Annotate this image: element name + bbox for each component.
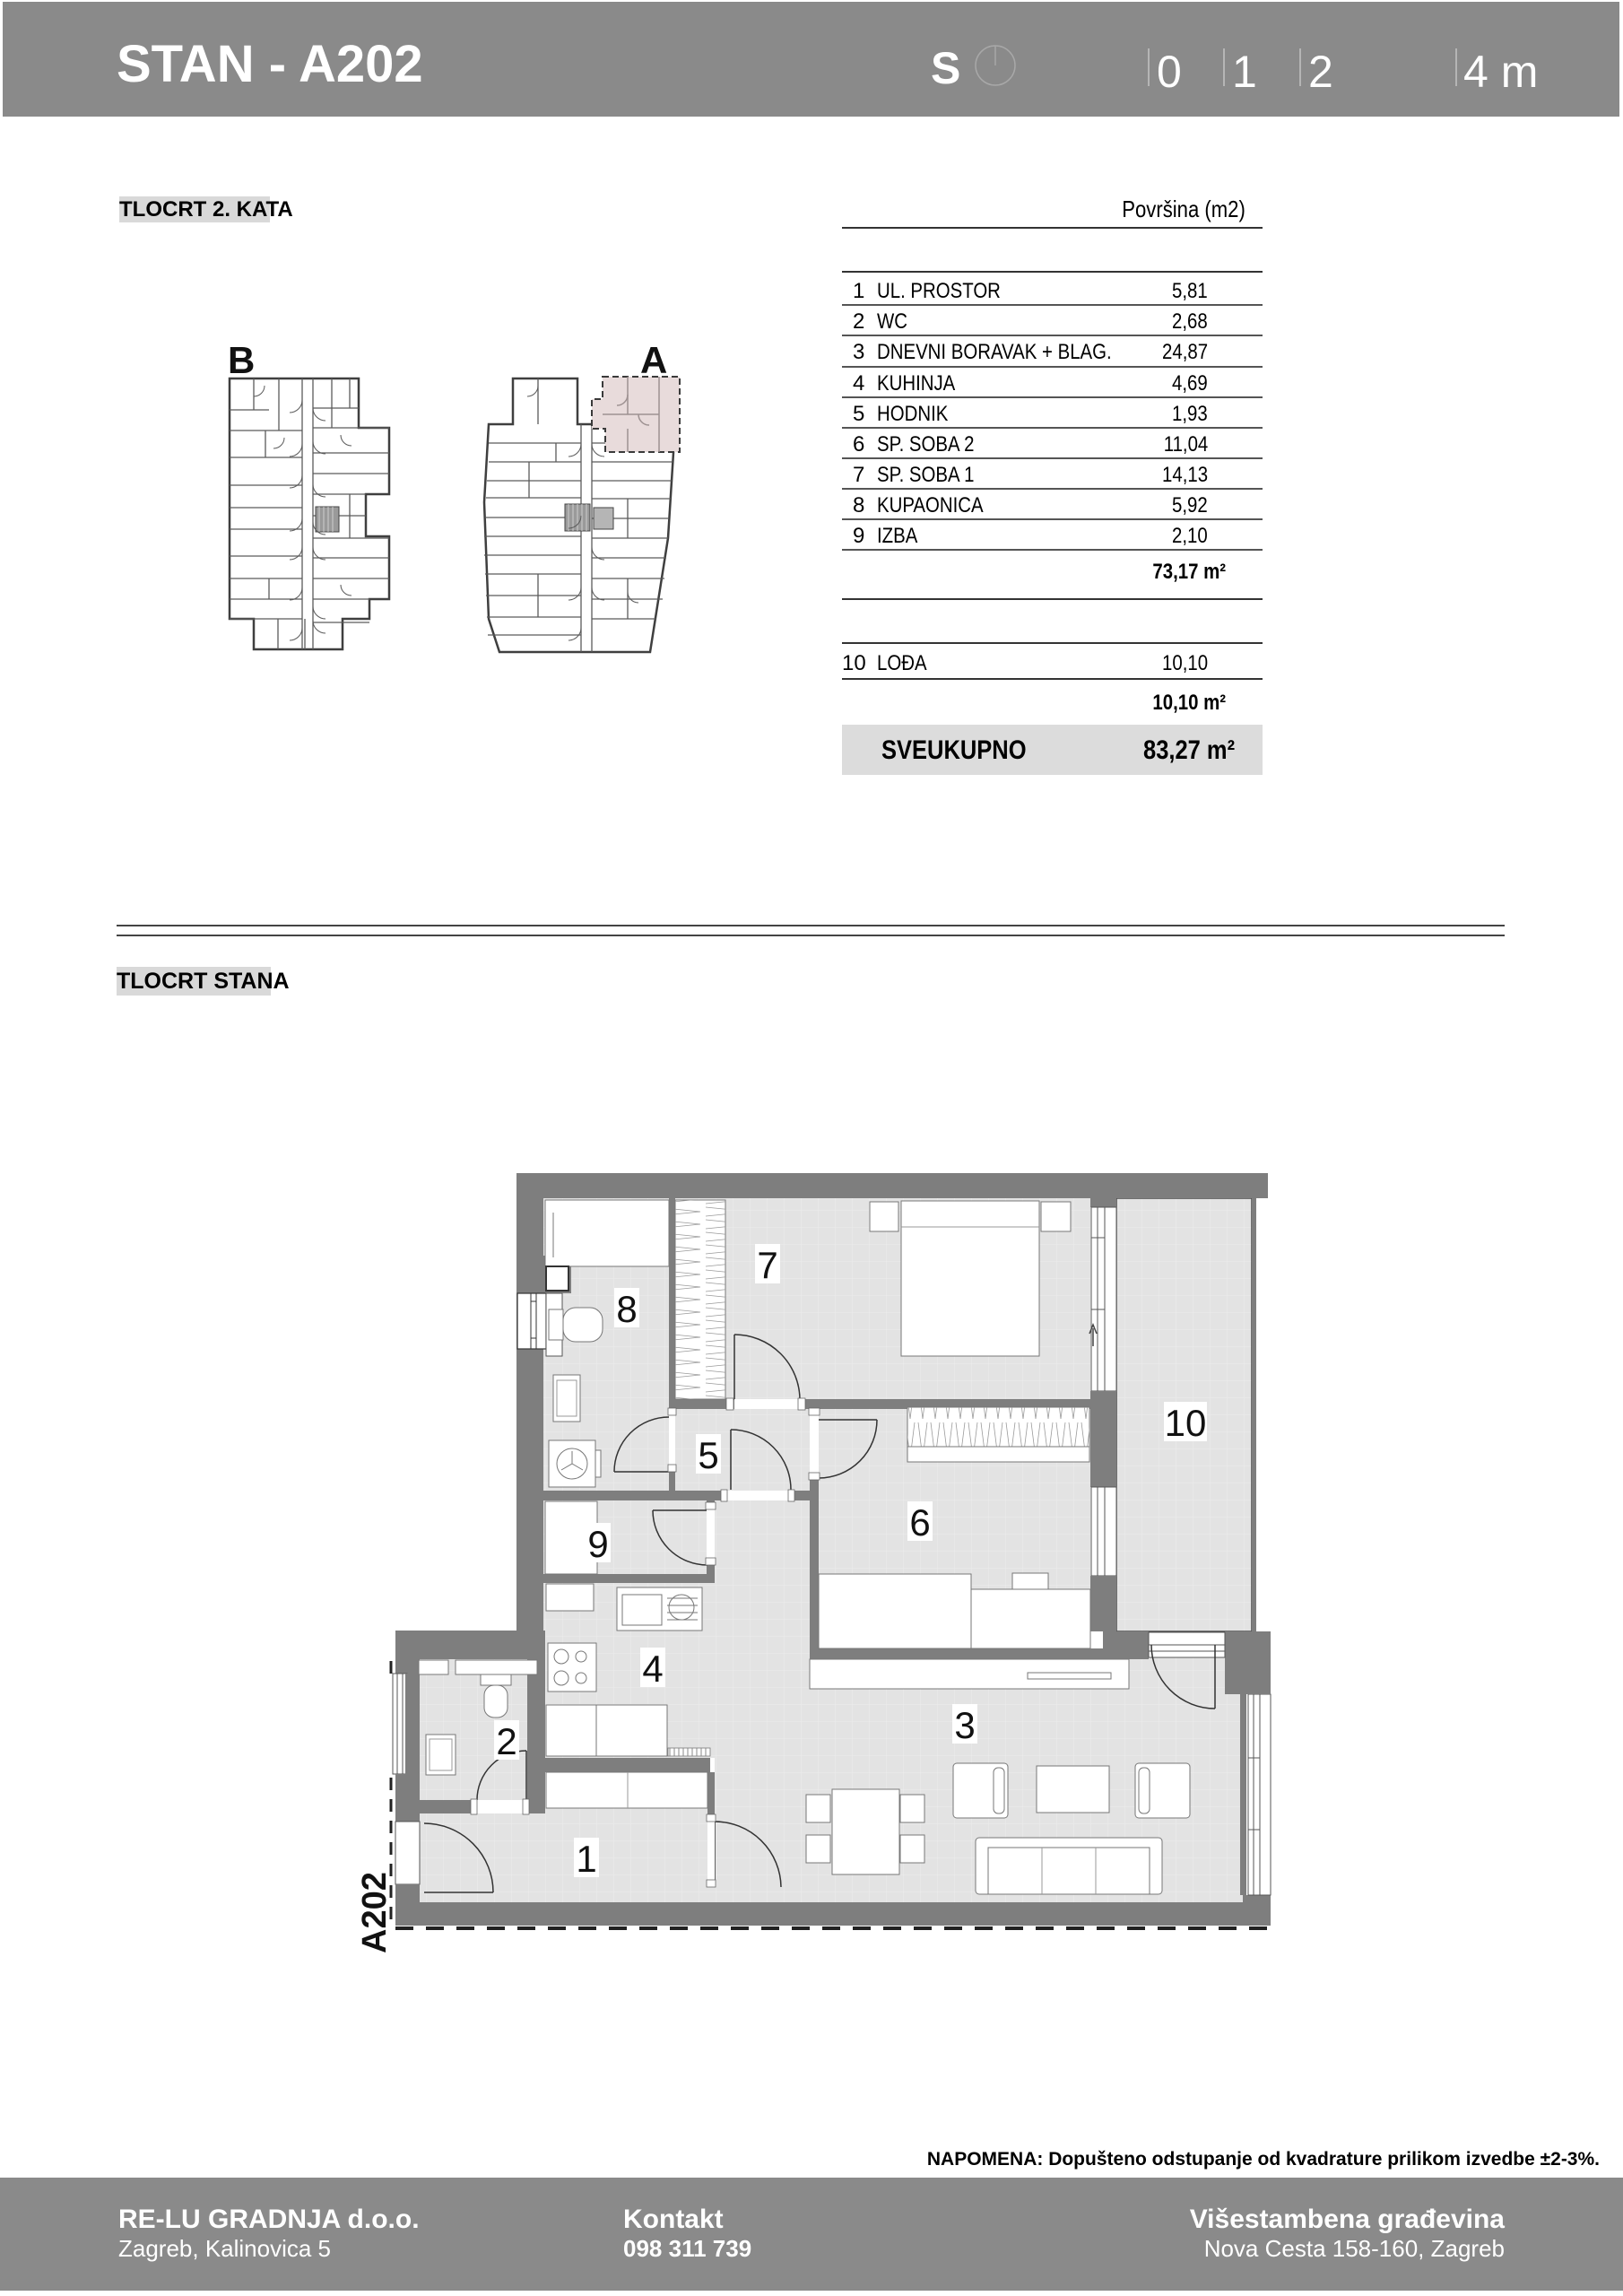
svg-text:4: 4 — [642, 1648, 663, 1690]
svg-text:7: 7 — [757, 1244, 777, 1286]
svg-text:2: 2 — [496, 1720, 516, 1762]
svg-text:6: 6 — [909, 1501, 930, 1544]
svg-text:S: S — [931, 43, 960, 93]
svg-text:9: 9 — [587, 1523, 608, 1565]
svg-text:4 m: 4 m — [1463, 47, 1538, 97]
svg-text:A: A — [640, 341, 667, 381]
svg-text:5: 5 — [698, 1434, 718, 1476]
svg-text:1: 1 — [576, 1838, 596, 1880]
svg-text:8: 8 — [616, 1288, 637, 1330]
svg-text:2: 2 — [1308, 47, 1333, 97]
svg-text:0: 0 — [1157, 47, 1182, 97]
svg-text:1: 1 — [1232, 47, 1257, 97]
svg-text:A202: A202 — [356, 1872, 394, 1953]
svg-text:B: B — [228, 341, 255, 381]
svg-text:10: 10 — [1165, 1402, 1207, 1444]
svg-text:3: 3 — [954, 1704, 975, 1746]
